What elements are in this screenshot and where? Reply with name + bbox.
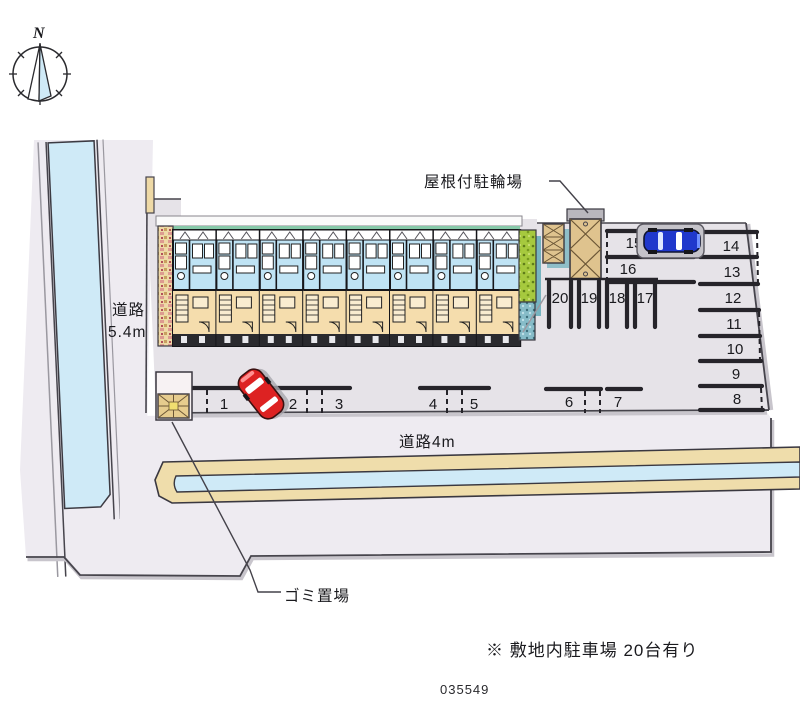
space-10: 10	[727, 341, 744, 358]
space-8: 8	[733, 391, 741, 408]
compass: N	[9, 25, 71, 105]
space-16: 16	[620, 261, 637, 278]
boundary-marker	[146, 177, 154, 213]
space-5: 5	[470, 396, 478, 413]
space-20: 20	[552, 290, 569, 307]
compass-needle-east	[39, 44, 51, 101]
garbage-area	[156, 372, 192, 420]
space-11: 11	[726, 316, 742, 333]
bicycle-shed	[567, 209, 604, 279]
bottom-road: 道路4m	[26, 411, 800, 579]
roof-eave	[156, 216, 522, 226]
storage-shed	[543, 224, 569, 268]
space-4: 4	[429, 396, 437, 413]
space-12: 12	[725, 290, 742, 307]
space-18: 18	[609, 290, 626, 307]
space-14: 14	[723, 238, 740, 255]
blue-car	[637, 224, 704, 258]
compass-needle-west	[28, 44, 40, 101]
plan-id: 035549	[440, 682, 489, 697]
garbage-label: ゴミ置場	[284, 586, 350, 605]
site-plan: 道路 5.4m 道路4m	[0, 0, 800, 727]
apartment-building	[156, 216, 522, 346]
space-9: 9	[732, 366, 740, 383]
site-plan-drawing: 道路 5.4m 道路4m	[0, 0, 800, 727]
site-note: ※ 敷地内駐車場 20台有り	[486, 641, 698, 660]
space-1: 1	[220, 396, 228, 413]
bike-shed-label: 屋根付駐輪場	[424, 173, 523, 191]
left-road-width: 5.4m	[108, 324, 146, 341]
space-2: 2	[289, 396, 297, 413]
space-13: 13	[724, 264, 741, 281]
bottom-road-label: 道路4m	[399, 433, 456, 451]
left-road-label: 道路	[112, 301, 145, 319]
compass-north-label: N	[32, 25, 46, 42]
space-6: 6	[565, 394, 573, 411]
building-west-wall	[158, 226, 173, 346]
space-7: 7	[614, 394, 622, 411]
space-3: 3	[335, 396, 343, 413]
space-17: 17	[637, 290, 654, 307]
space-19: 19	[581, 290, 598, 307]
